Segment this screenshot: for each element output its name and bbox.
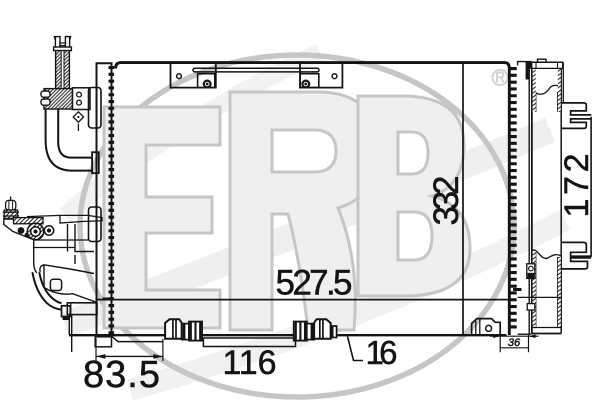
svg-text:16: 16 [366, 334, 398, 371]
svg-text:172: 172 [558, 154, 596, 218]
svg-text:36: 36 [508, 337, 521, 349]
svg-text:332: 332 [427, 176, 466, 226]
svg-text:116: 116 [223, 344, 277, 382]
svg-text:83.5: 83.5 [83, 354, 160, 396]
svg-text:527.5: 527.5 [276, 264, 353, 303]
